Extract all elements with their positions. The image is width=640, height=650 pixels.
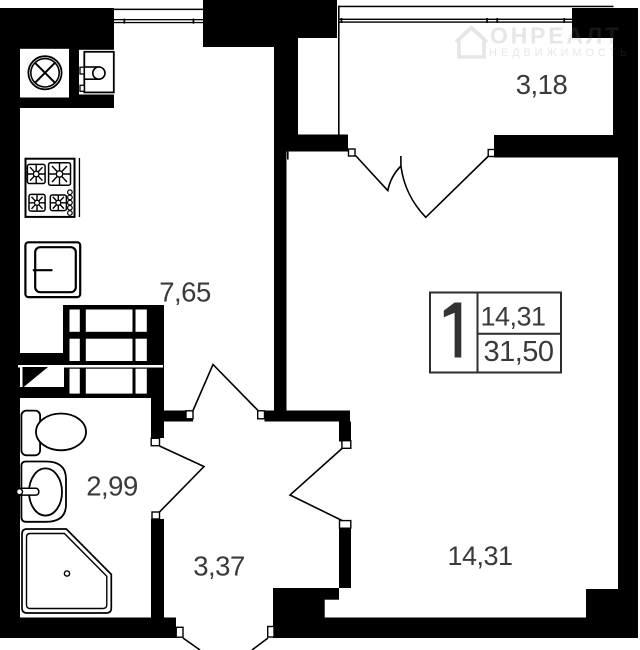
svg-text:ОНРЕАЛТ: ОНРЕАЛТ — [490, 23, 622, 49]
svg-text:НЕДВИЖИМОСТЬ: НЕДВИЖИМОСТЬ — [489, 47, 631, 59]
svg-text:3,18: 3,18 — [516, 69, 568, 100]
svg-text:14,31: 14,31 — [480, 302, 545, 332]
svg-text:2,99: 2,99 — [86, 471, 138, 502]
svg-text:14,31: 14,31 — [447, 541, 512, 571]
svg-text:7,65: 7,65 — [159, 277, 211, 308]
svg-text:3,37: 3,37 — [193, 551, 245, 582]
svg-text:31,50: 31,50 — [483, 336, 553, 368]
